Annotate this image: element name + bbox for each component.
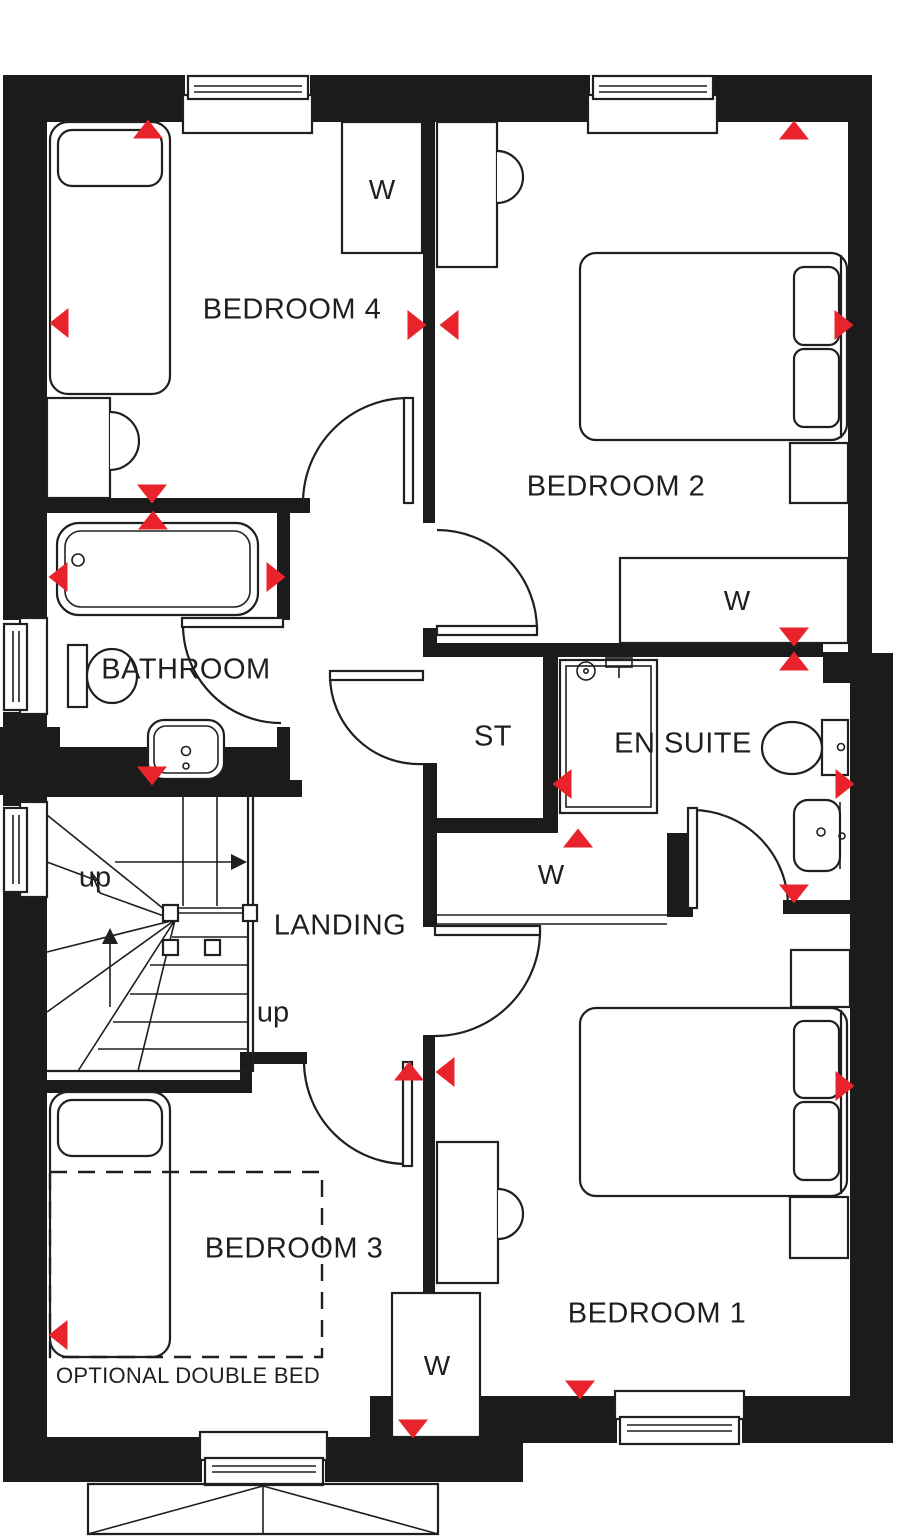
wall-ensuite-north — [423, 643, 823, 657]
store-door-leaf — [330, 671, 423, 680]
bedroom4-label: BEDROOM 4 — [203, 294, 382, 327]
wall-bathroom-top — [43, 498, 310, 513]
wall-left-upper — [3, 75, 47, 620]
stairs-balustrade — [248, 793, 253, 1072]
bedroom1-door-leaf — [435, 926, 540, 935]
stairs-up-label-bottom: up — [257, 997, 289, 1030]
red-arrow-marker-left — [49, 562, 68, 592]
red-arrow-marker-down — [779, 628, 809, 647]
wall-landing-store-mid — [423, 763, 437, 927]
wall-top-mid — [310, 75, 590, 122]
wall-bottom-step — [370, 1443, 523, 1482]
bedroom2-wardrobe-label: W — [724, 585, 750, 617]
red-arrow-marker-down — [779, 885, 809, 904]
bed2-pillow-1 — [794, 267, 839, 345]
landing-label: LANDING — [274, 910, 406, 943]
bed4-chair — [110, 412, 139, 470]
stairs-newel-4 — [205, 940, 220, 955]
stairs-up-label-top: up — [79, 862, 111, 895]
bedroom4-door-leaf — [404, 398, 413, 503]
bed1-chair — [498, 1189, 523, 1239]
red-arrow-marker-right — [835, 310, 854, 340]
wall-ensuite-pilaster — [823, 652, 850, 683]
red-arrow-marker-up — [138, 511, 168, 530]
wall-bottom-bed3-left — [3, 1437, 202, 1482]
front-canopy — [88, 1484, 438, 1534]
bed2-dresser — [437, 122, 497, 267]
ensuite-door-swing — [692, 810, 788, 906]
landing-cupboard-label: W — [538, 859, 564, 891]
red-arrow-marker-up — [394, 1062, 424, 1081]
red-arrow-marker-right — [836, 1071, 855, 1101]
bathroom-window — [4, 618, 47, 714]
wall-bottom-bed1-right — [742, 1396, 893, 1443]
bed1-pillow-1 — [794, 1021, 839, 1098]
red-arrow-marker-left — [50, 308, 69, 338]
store-label: ST — [474, 721, 512, 754]
optional-double-bed-note: OPTIONAL DOUBLE BED — [56, 1363, 320, 1389]
cupboard-front-doors — [437, 915, 667, 924]
stairs-newel-3 — [163, 940, 178, 955]
red-arrow-marker-up — [779, 121, 809, 140]
floorplan-drawing — [0, 0, 900, 1538]
red-arrow-marker-up — [563, 829, 593, 848]
red-arrow-marker-right — [836, 769, 855, 799]
red-arrow-marker-right — [267, 562, 286, 592]
red-arrow-marker-left — [553, 769, 572, 799]
wall-store-shower-divider — [543, 657, 558, 833]
wall-store-bottom — [423, 818, 558, 833]
wall-right-upper — [848, 75, 872, 653]
ensuite-door-leaf — [688, 808, 697, 908]
ensuite-toilet-bowl — [762, 722, 822, 774]
bed1-bedside-table-south — [790, 1197, 848, 1258]
bath — [57, 523, 258, 615]
bathroom-door-leaf — [182, 618, 283, 627]
bedroom1-wardrobe-label: W — [424, 1350, 450, 1382]
red-arrow-marker-right — [408, 310, 427, 340]
red-arrow-marker-down — [137, 485, 167, 504]
ensuite-label: EN SUITE — [614, 728, 752, 761]
wall-bed3-doorway-post — [240, 1052, 252, 1093]
wall-left-lower — [3, 893, 47, 1482]
bed1-bedside-table-north — [791, 950, 850, 1007]
bedroom1-door-swing — [435, 931, 540, 1036]
bedroom2-window — [588, 76, 717, 133]
red-arrow-marker-left — [440, 310, 459, 340]
store-door-swing — [330, 675, 423, 764]
stairs-arrow-head-up — [102, 928, 118, 944]
bedroom2-door-leaf — [437, 626, 537, 635]
stairs-newel-1 — [163, 905, 178, 921]
bedroom3-label: BEDROOM 3 — [205, 1233, 384, 1266]
ensuite-sink — [794, 800, 840, 871]
bed1-dresser — [437, 1142, 498, 1283]
stairs-upper-treads — [183, 795, 217, 906]
bed4-bedside-unit — [47, 398, 110, 498]
bedroom4-window — [183, 76, 312, 133]
red-arrow-marker-up — [779, 652, 809, 671]
bed3-pillow — [58, 1100, 162, 1156]
bedroom1-label: BEDROOM 1 — [568, 1298, 747, 1331]
red-arrow-marker-down — [137, 767, 167, 786]
floorplan-canvas: BEDROOM 4 BEDROOM 2 BATHROOM ST EN SUITE… — [0, 0, 900, 1538]
red-arrow-marker-down — [565, 1381, 595, 1400]
red-arrow-marker-down — [398, 1420, 428, 1439]
bed1-pillow-2 — [794, 1102, 839, 1180]
bedroom1-window — [615, 1391, 744, 1444]
stairs-arrow-head-right — [231, 854, 247, 870]
stairs-window — [4, 802, 47, 897]
bedroom2-door-swing — [437, 530, 537, 630]
staircase — [47, 793, 257, 1072]
bed2-pillow-2 — [794, 349, 839, 427]
stairs-newel-2 — [243, 905, 257, 921]
bathroom-toilet-cistern — [68, 645, 87, 707]
wall-right-lower — [850, 653, 893, 1443]
bedroom2-label: BEDROOM 2 — [527, 471, 706, 504]
bedroom4-door-swing — [303, 398, 408, 503]
red-arrow-marker-left — [436, 1057, 455, 1087]
bedroom3-door-swing — [304, 1062, 407, 1164]
bedroom4-wardrobe-label: W — [369, 174, 395, 206]
wall-bed3-bed1-partition — [423, 1035, 435, 1293]
red-arrow-marker-up — [133, 120, 163, 139]
bedroom3-window — [200, 1432, 327, 1485]
red-arrow-marker-left — [49, 1320, 68, 1350]
stairs-mid-rail — [178, 908, 243, 913]
bed2-bedside-table — [790, 443, 848, 503]
bathroom-label: BATHROOM — [101, 654, 270, 687]
bed2-chair — [497, 151, 523, 203]
